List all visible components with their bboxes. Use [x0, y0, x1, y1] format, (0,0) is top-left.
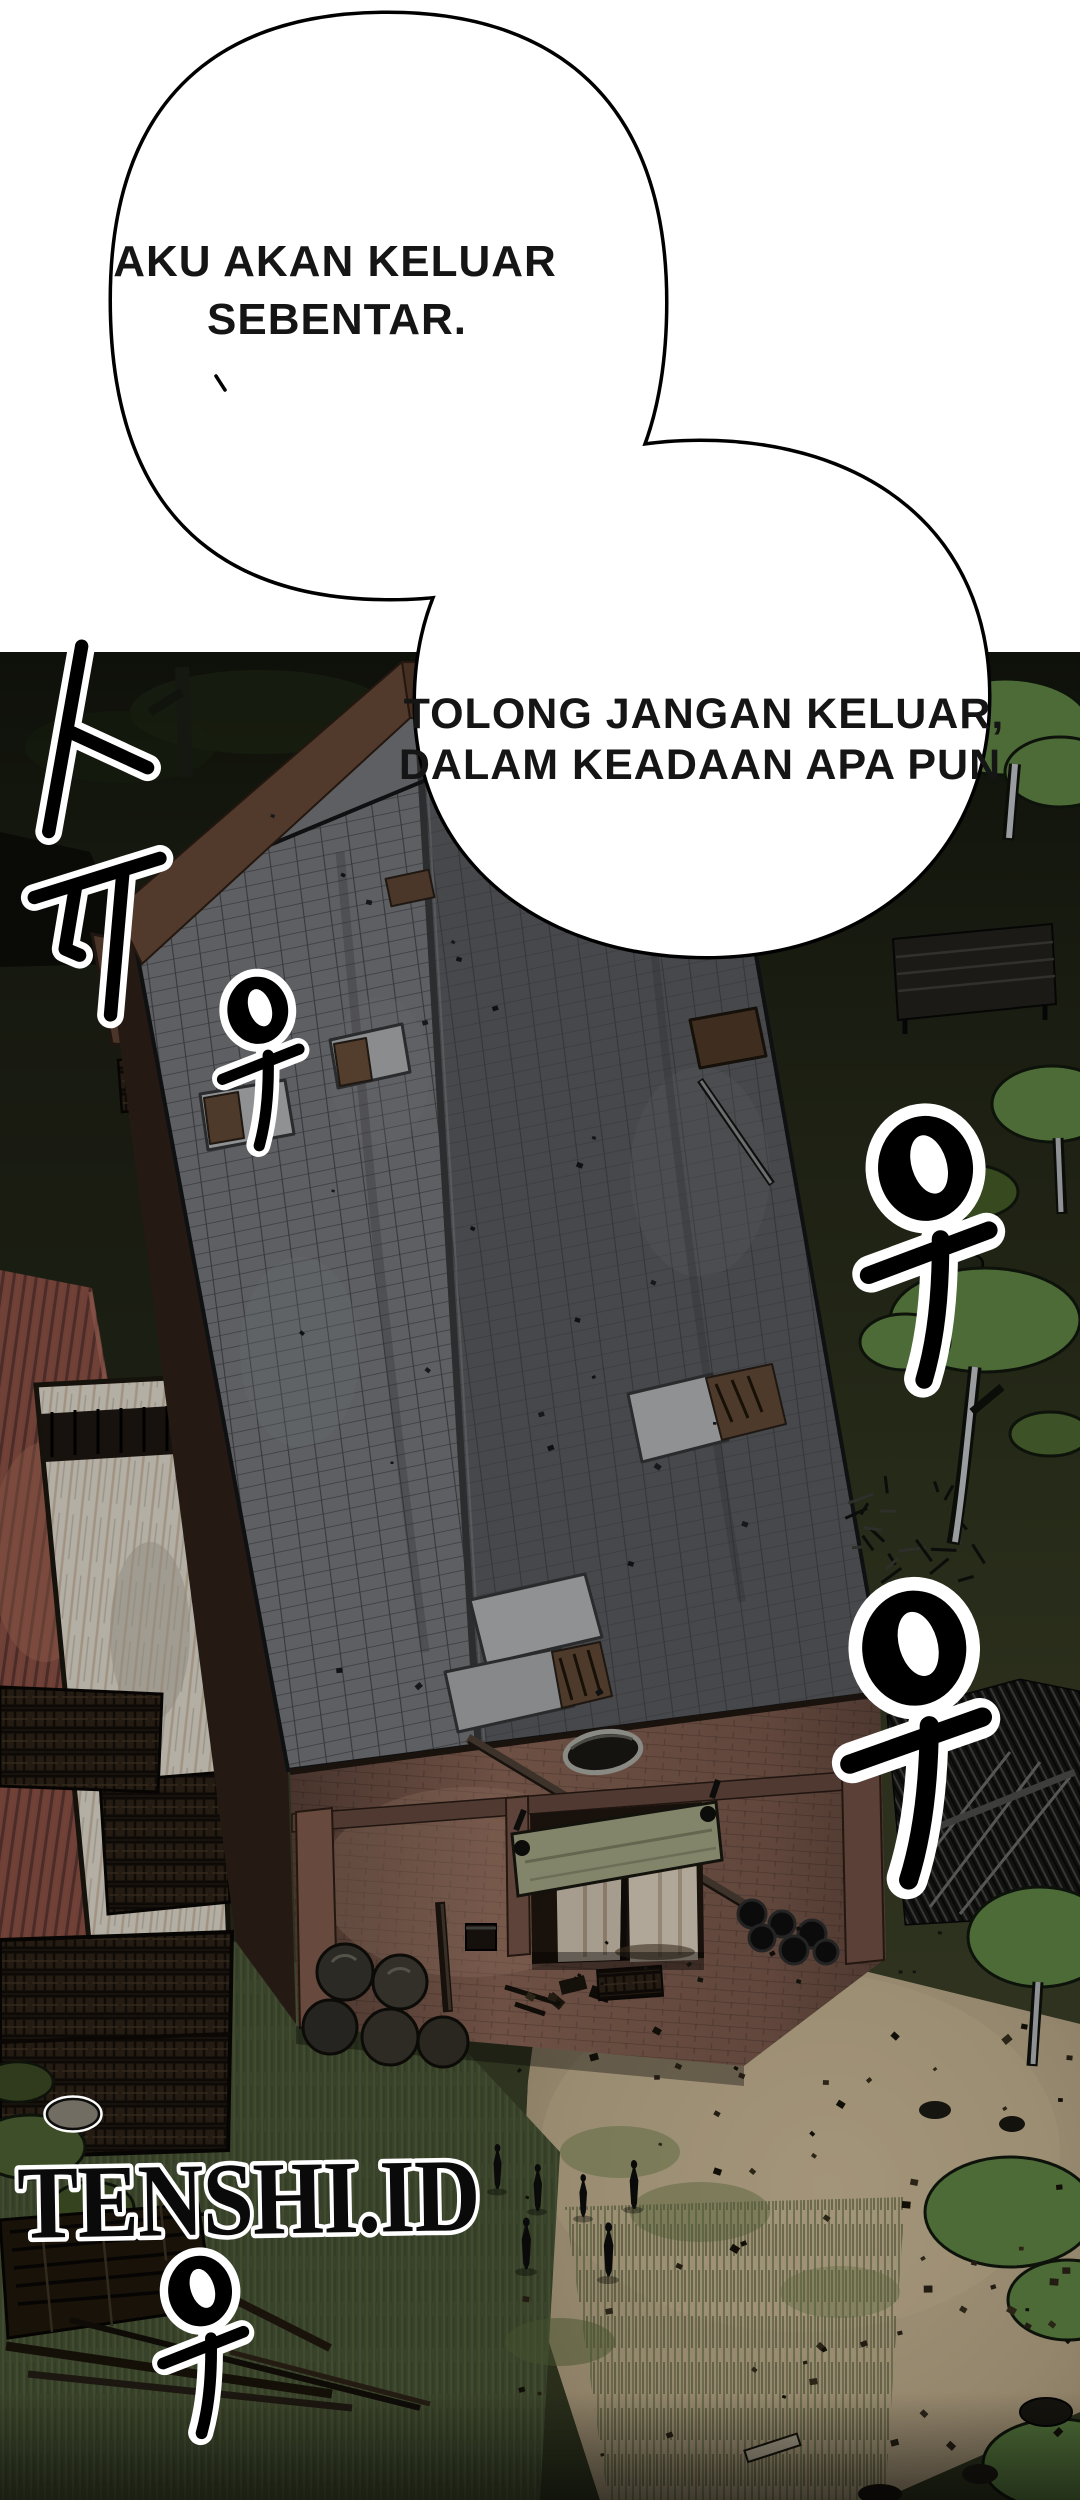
comic-panel: TENSHI.ID — [0, 0, 1080, 2500]
accent-tick — [216, 376, 225, 390]
bubble-1-line-1: AKU AKAN KELUAR — [113, 237, 557, 286]
scene: TENSHI.ID — [0, 652, 1080, 2500]
scene-art: TENSHI.ID — [0, 652, 1080, 2500]
watermark-text: TENSHI.ID — [16, 2138, 480, 2261]
rock — [45, 2097, 101, 2131]
bubble-1-line-2: SEBENTAR. — [207, 295, 467, 344]
bubble-1 — [112, 14, 665, 598]
